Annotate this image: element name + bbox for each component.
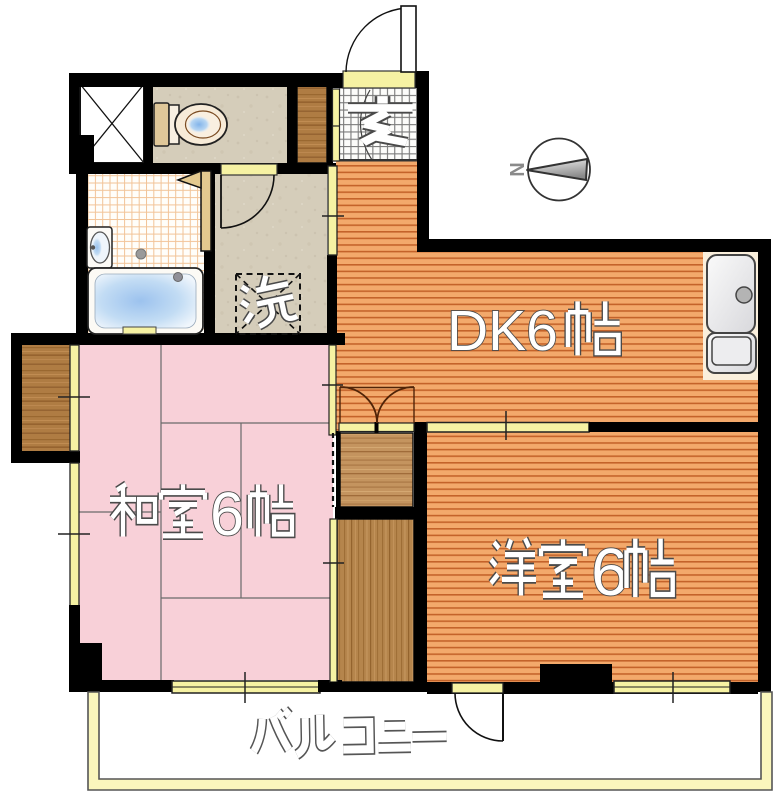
svg-text:N: N [507, 162, 529, 176]
svg-text:6: 6 [591, 535, 628, 610]
svg-text:DK6: DK6 [447, 299, 558, 363]
svg-text:6: 6 [210, 480, 244, 548]
